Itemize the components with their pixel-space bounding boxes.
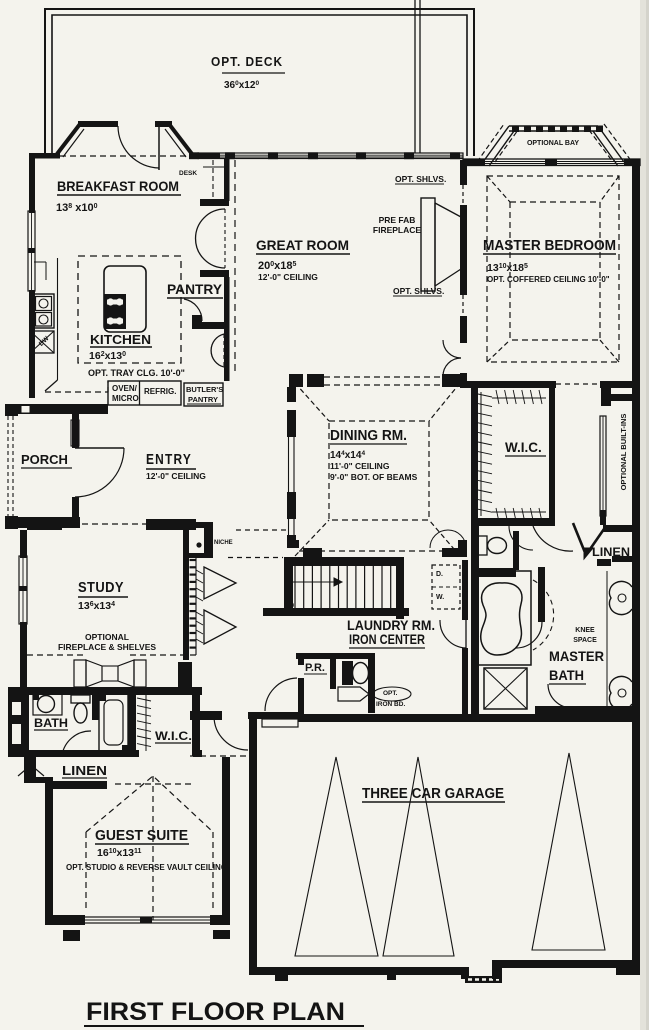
svg-text:OPT. SHLVS.: OPT. SHLVS.: [393, 286, 444, 296]
svg-text:OPTIONAL BUILT-INS: OPTIONAL BUILT-INS: [619, 414, 628, 491]
svg-text:NICHE: NICHE: [214, 540, 233, 546]
svg-text:W.I.C.: W.I.C.: [505, 440, 542, 455]
svg-text:MASTER BEDROOM: MASTER BEDROOM: [483, 237, 616, 254]
svg-text:GUEST SUITE: GUEST SUITE: [95, 828, 188, 844]
svg-text:KNEE: KNEE: [575, 627, 595, 634]
svg-text:P.R.: P.R.: [305, 662, 325, 674]
svg-text:PRE FAB: PRE FAB: [379, 215, 416, 225]
svg-text:OPT. DECK: OPT. DECK: [211, 55, 283, 69]
svg-text:MASTER: MASTER: [549, 648, 604, 664]
svg-text:W.I.C.: W.I.C.: [155, 729, 192, 743]
svg-text:MICRO: MICRO: [112, 394, 139, 403]
svg-text:FIREPLACE: FIREPLACE: [373, 225, 422, 235]
svg-text:OPTIONAL: OPTIONAL: [85, 632, 129, 642]
svg-text:SPACE: SPACE: [573, 637, 597, 644]
svg-text:9'-0" BOT. OF BEAMS: 9'-0" BOT. OF BEAMS: [330, 472, 418, 482]
svg-text:162x130: 162x130: [89, 350, 126, 362]
svg-text:PORCH: PORCH: [21, 452, 68, 467]
svg-text:OPT. COFFERED CEILING 10'-0": OPT. COFFERED CEILING 10'-0": [487, 275, 610, 284]
svg-text:W.: W.: [436, 594, 444, 601]
svg-text:144x144: 144x144: [330, 450, 365, 461]
svg-text:11'-0" CEILING: 11'-0" CEILING: [330, 461, 390, 471]
svg-text:BATH: BATH: [549, 667, 584, 683]
svg-text:OVEN/: OVEN/: [112, 384, 138, 393]
svg-text:360x120: 360x120: [224, 80, 259, 91]
svg-text:PANTRY: PANTRY: [167, 281, 223, 297]
svg-text:THREE CAR GARAGE: THREE CAR GARAGE: [362, 786, 504, 802]
svg-text:OPTIONAL BAY: OPTIONAL BAY: [527, 140, 579, 147]
svg-text:FIRST FLOOR PLAN: FIRST FLOOR PLAN: [86, 998, 345, 1026]
svg-text:GREAT ROOM: GREAT ROOM: [256, 237, 349, 253]
svg-text:PANTRY: PANTRY: [188, 395, 218, 404]
svg-text:BREAKFAST ROOM: BREAKFAST ROOM: [57, 178, 179, 194]
svg-text:D.: D.: [436, 571, 443, 578]
svg-text:138 x100: 138 x100: [56, 202, 98, 214]
svg-text:OPT. SHLVS.: OPT. SHLVS.: [395, 174, 446, 184]
svg-text:DESK: DESK: [179, 170, 197, 177]
svg-text:KITCHEN: KITCHEN: [90, 333, 151, 347]
svg-text:STUDY: STUDY: [78, 579, 124, 596]
svg-text:OPT. STUDIO & REVERSE VAULT CE: OPT. STUDIO & REVERSE VAULT CEILING: [66, 863, 227, 872]
svg-text:IRON CENTER: IRON CENTER: [349, 631, 425, 647]
svg-text:DINING RM.: DINING RM.: [330, 428, 407, 444]
svg-text:OPT.: OPT.: [383, 690, 398, 697]
svg-text:REFRIG.: REFRIG.: [144, 387, 176, 396]
svg-text:12'-0" CEILING: 12'-0" CEILING: [146, 471, 206, 481]
svg-text:FIREPLACE & SHELVES: FIREPLACE & SHELVES: [58, 642, 156, 652]
svg-text:200x185: 200x185: [258, 260, 297, 272]
svg-text:12'-0" CEILING: 12'-0" CEILING: [258, 272, 318, 282]
svg-text:LINEN: LINEN: [62, 764, 107, 778]
svg-text:136x134: 136x134: [78, 600, 115, 612]
svg-text:1310x185: 1310x185: [487, 262, 528, 274]
svg-text:OPT. TRAY CLG. 10'-0": OPT. TRAY CLG. 10'-0": [88, 368, 185, 378]
svg-text:ENTRY: ENTRY: [146, 451, 192, 468]
svg-text:BUTLER'S: BUTLER'S: [186, 385, 223, 394]
svg-text:IRON BD.: IRON BD.: [376, 701, 405, 708]
svg-text:BATH: BATH: [34, 716, 68, 730]
